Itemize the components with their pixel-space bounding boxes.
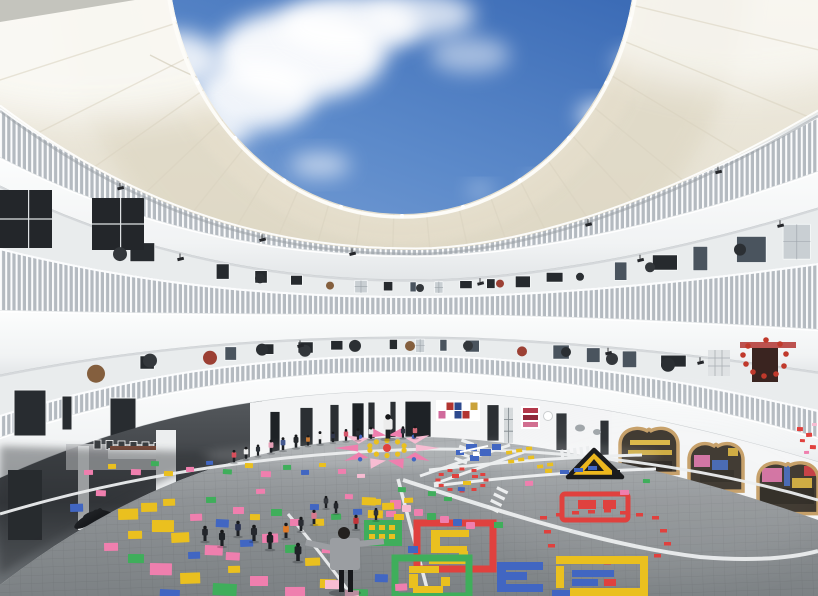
blue-dash [574,468,583,472]
person-shadow [297,531,306,533]
person-head [236,521,239,524]
mandala-dot [402,443,407,448]
window [693,246,708,270]
yellow-dash [506,450,512,454]
scatter-tile [245,463,253,468]
person-head [402,426,405,429]
person-head [296,543,300,547]
green-grid-dot [379,525,385,530]
scatter-tile [212,583,237,596]
wall-circle-decor [576,273,584,281]
person-body [311,513,316,519]
wall-circle-decor [561,347,571,357]
scatter-tile [250,514,260,520]
corner-tile [494,522,503,528]
scatter-tile [395,583,407,591]
red-circle-dash [439,473,444,476]
person-legs [233,457,235,462]
red-circle-dash [472,488,477,491]
scatter-tile [152,520,174,532]
person-legs [402,433,404,438]
scatter-tile [338,469,346,474]
yellow-dash [547,462,553,466]
window [383,282,392,291]
person-body [334,503,339,508]
scatter-tile [428,491,436,496]
red-circle-dash [472,469,477,472]
mandala-dot [384,453,389,458]
person-legs [220,539,223,546]
scatter-tile [643,479,650,483]
mandala-outer-dot [358,457,362,461]
person-body [202,529,208,536]
white-square [473,452,479,456]
wall-circle-decor [405,341,415,351]
yellow-dash [508,459,514,463]
scatter-tile [250,576,268,586]
scatter-tile [188,552,200,559]
person-body [331,434,335,439]
poster [439,411,446,419]
scatter-tile [108,464,116,469]
person-shadow [322,508,330,510]
person-legs [237,530,240,536]
person-legs [335,508,337,513]
person-head [282,437,285,440]
mandala-dot [395,439,400,444]
person-shadow [352,529,361,531]
person-shadow [310,524,319,526]
scene-svg: Circular kindergarten courtyard with ova… [0,0,818,596]
person-head [335,501,338,504]
person-body [353,518,358,524]
scatter-tile [797,427,803,431]
scatter-tile [305,558,320,566]
chain-tile [414,509,423,516]
red-ornament [777,341,783,347]
chain-tile [466,522,475,529]
scatter-tile [375,574,388,582]
red-dash [652,516,659,520]
canopy-attachment-knob [339,205,343,209]
person-body [235,524,241,531]
scatter-tile [70,504,83,512]
wall-circle-decor [256,344,268,356]
mandala-center [383,444,391,452]
person-legs [285,532,288,538]
scatter-tile [141,503,157,512]
scatter-tile [394,514,404,520]
window [487,279,496,289]
scatter-tile [310,504,319,510]
canopy-attachment-knob [461,205,465,209]
red-ornament [761,373,767,379]
person-shadow [265,549,276,552]
person-legs [375,515,377,520]
scatter-tile [216,519,229,528]
person-shadow [200,541,210,543]
maze-red-bar [604,579,616,586]
scatter-tile [325,580,341,589]
scatter-tile [271,509,282,516]
person-shadow [249,541,259,544]
person-legs [319,439,321,444]
green-grid-dot [389,525,395,530]
wall-circle-decor [255,273,265,283]
person-head [385,414,391,420]
canopy-attachment-knob [400,214,404,218]
number-six-bar [413,586,443,593]
person-shadow [305,446,312,448]
chain-tile [427,513,436,520]
circle-blob [463,481,471,485]
yellow-maze-bar [556,556,648,564]
person-body [267,535,273,543]
poster [447,403,454,411]
person-body [413,428,417,433]
wall-circle-decor [113,247,127,261]
wall-circle-decor [517,346,527,356]
scatter-tile [444,497,452,501]
person-head [325,496,328,499]
poster [463,411,470,419]
scatter-tile [398,487,406,492]
person-legs [252,534,255,541]
canopy-attachment-knob [172,17,176,21]
person-shadow [242,459,250,461]
scatter-tile [382,503,394,510]
blue-tile [480,449,491,456]
blue-maze-bar [497,562,506,592]
wall-circle-decor [463,341,473,351]
door [62,396,72,430]
yellow-maze-bar [556,566,564,588]
poster-board-cell [523,415,538,420]
window [410,282,416,292]
person-body [298,520,303,526]
red-dash [540,516,547,520]
scatter-tile [285,587,305,596]
scatter-tile [228,566,240,573]
person-legs [370,434,372,439]
wall-circle-decor [143,354,157,368]
red-dash [660,529,667,533]
person-shadow [354,440,361,442]
window [331,341,343,351]
scatter-tile [131,469,141,475]
scatter-tile [128,531,142,539]
blue-dash [588,466,597,470]
number-six-bar [409,574,418,588]
person-body [244,449,249,454]
door [14,390,46,436]
person-body [232,452,237,457]
scatter-tile [190,514,202,521]
scatter-tile [151,461,159,466]
person-shadow [281,538,291,540]
scatter-tile [206,461,213,465]
scatter-tile [96,490,106,496]
scatter-tile [353,509,362,515]
person-body [269,442,274,448]
person-head [252,525,256,529]
red-dash [548,544,555,548]
number-six-bar [409,566,439,573]
person-body [306,437,310,442]
scatter-tile [283,465,291,470]
scatter-tile [812,423,817,426]
red-ornament [773,371,779,377]
person-legs [270,447,273,452]
person-legs [245,454,247,459]
poster [455,411,462,419]
red-dash [572,511,579,515]
scatter-tile [128,554,144,563]
scatter-tile [404,498,413,503]
person-shadow [267,453,275,455]
person-shadow [372,520,380,522]
scatter-tile [525,481,533,486]
red-ornament [740,352,746,358]
red-ornament [743,361,749,367]
cloud [290,153,350,177]
person-head [307,435,309,437]
chain-tile [402,505,411,512]
person-head [319,431,322,434]
person-shadow [332,513,340,515]
scatter-tile [256,489,265,494]
person-shadow [292,448,300,450]
person-body [283,526,289,533]
person-head [245,447,248,450]
person-body [401,428,405,433]
window [225,347,237,361]
red-dash [588,510,595,514]
person-legs [414,433,416,438]
lattice-window [708,350,730,376]
car-inner [578,500,596,509]
person-body [324,498,329,503]
car-inner [603,500,616,509]
red-ornament [745,343,751,349]
person-legs [325,503,327,508]
red-circle-dash [460,468,465,471]
yellow-dash [528,455,534,459]
poster [471,411,478,419]
person-head [203,526,206,529]
poster [455,403,462,411]
scatter-tile [545,469,552,473]
red-circle-dash [439,484,444,487]
corner-tile [408,546,418,553]
mandala-dot [374,452,379,457]
yellow-dash [537,464,543,468]
window [291,275,303,285]
picture-frame [94,440,101,449]
person-head [354,515,357,518]
wall-circle-decor [734,244,746,256]
green-grid-dot [369,525,375,530]
window [652,255,677,270]
maze-blue-bar [572,579,598,586]
triangle-chip [612,470,620,475]
mandala-dot [367,448,372,453]
window [216,264,229,279]
circle-blob [472,475,478,478]
canopy-attachment-knob [628,17,632,21]
scatter-tile [620,490,629,495]
red-dash [654,554,661,558]
scatter-tile [800,439,805,442]
adult-head [338,527,350,539]
person-shadow [217,546,227,549]
person-legs [268,542,271,549]
red-dash [604,509,611,513]
wall-circle-decor [349,340,361,352]
red-ornament [750,369,756,375]
scatter-tile [357,474,365,478]
window [440,339,447,351]
person-body [281,440,286,446]
red-circle-dash [484,479,489,482]
person-head [295,434,298,437]
number-five-bar [431,530,469,537]
window [622,351,636,368]
scatter-tile [319,463,326,467]
green-grid-dot [389,534,395,539]
scatter-tile [118,509,138,520]
red-dash [544,530,551,534]
person-head [345,429,348,432]
person-legs [295,442,298,447]
person-legs [307,441,309,445]
scatter-tile [261,471,271,477]
person-head [375,508,378,511]
scatter-tile [104,543,118,551]
red-ornament [783,351,789,357]
person-legs [355,523,358,529]
window [460,281,473,289]
wall-circle-decor [661,358,675,372]
window [389,339,397,349]
scatter-tile [159,589,179,596]
person-shadow [230,462,238,464]
circle-blob [452,474,459,478]
mandala-dot [367,443,372,448]
wall-circle-decor [203,351,217,365]
scatter-tile [240,540,253,547]
person-head [233,450,236,453]
wall-circle-decor [416,284,424,292]
person-body [356,430,360,435]
person-body [294,437,299,443]
mandala-dot [402,448,407,453]
window [615,262,627,280]
person-body [219,533,225,540]
wall-circle-decor [496,280,504,288]
yellow-dash [518,457,524,461]
red-circle-dash [448,488,453,491]
scatter-tile [206,497,216,503]
scatter-tile [458,487,465,491]
number-six-bar [441,577,450,586]
person-head [220,530,224,534]
person-shadow [254,456,261,458]
poster [471,403,478,411]
person-head [270,440,273,443]
chain-tile [440,516,449,523]
poster-board-cell [523,408,538,413]
person-legs [296,553,300,561]
cloud [468,184,492,196]
ground-door [405,401,431,437]
yellow-maze-bar [570,588,642,596]
scatter-tile [180,572,200,584]
person-head [284,523,287,526]
scatter-tile [163,499,175,506]
person-shadow [330,442,337,444]
person-body [251,528,257,535]
wall-circle-decor [645,262,655,272]
person-legs [257,451,259,456]
person-body [344,431,348,436]
person-head [257,445,260,448]
mandala-dot [395,452,400,457]
scatter-tile [345,494,353,499]
person-shadow [367,439,375,441]
red-circle-dash [436,479,441,482]
scatter-tile [804,451,809,454]
window [515,276,530,288]
maze-blue-bar [572,570,614,577]
chain-tile [453,519,462,526]
scatter-tile [810,445,816,449]
person-shadow [279,450,287,452]
blue-dash [560,470,569,474]
red-dash [636,513,643,517]
person-head [312,510,315,513]
scatter-tile [150,563,172,575]
wall-circle-decor [326,282,334,290]
scatter-tile [223,469,232,474]
person-legs [345,436,347,441]
scatter-tile [226,552,240,561]
wall-circle-decor [87,365,105,383]
red-circle-dash [480,473,485,476]
scatter-tile [233,507,244,514]
person-head [299,517,302,520]
scatter-tile [301,470,309,475]
person-legs [386,428,391,438]
scatter-tile [164,471,173,476]
person-shadow [399,438,406,440]
window [586,348,600,363]
yellow-dash [526,446,532,450]
person-body [374,510,379,515]
person-head [414,426,417,429]
green-grid-dot [379,534,385,539]
green-grid-dot [369,534,375,539]
person-body [383,419,392,430]
person-head [370,427,373,430]
red-circle-dash [480,484,485,487]
cloud [430,37,510,73]
person-legs [204,535,207,541]
person-legs [332,438,334,442]
person-body [318,434,323,440]
blue-tile [492,444,501,450]
window [546,272,563,282]
